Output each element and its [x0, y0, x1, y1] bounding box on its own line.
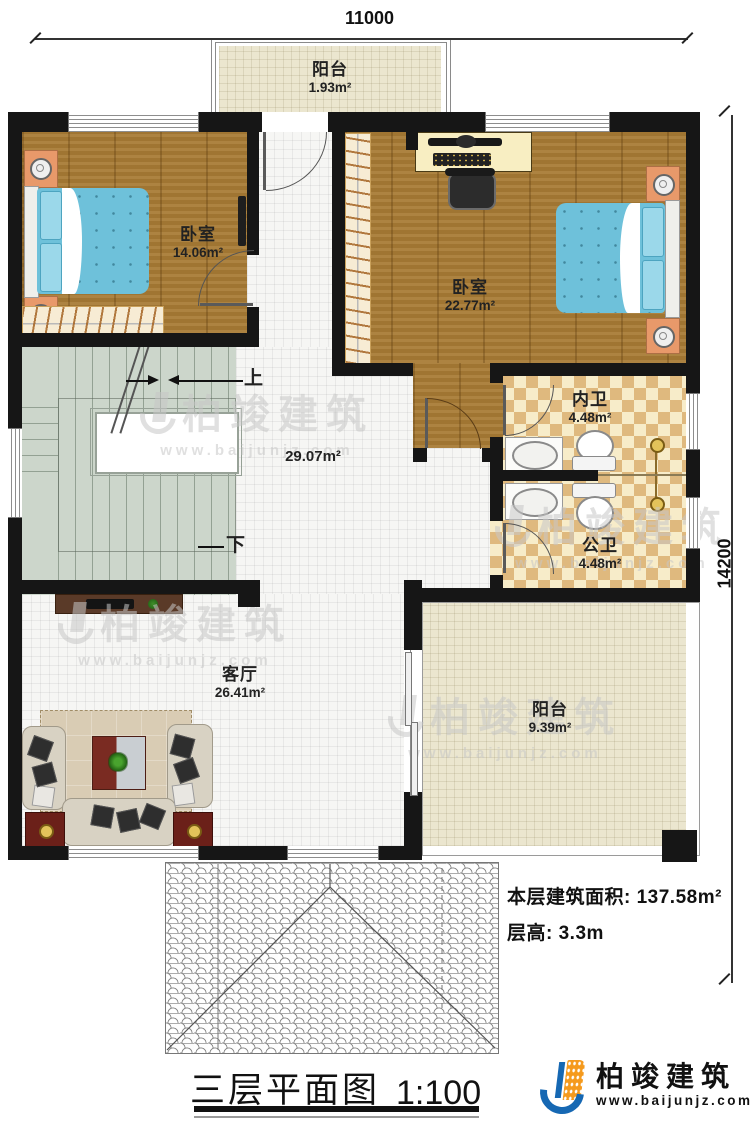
- wall-stair-south: [8, 580, 260, 594]
- company-name: 柏竣建筑: [596, 1062, 736, 1093]
- wall-alcove-south-left: [413, 448, 427, 462]
- sink: [512, 441, 558, 470]
- room-name: 公卫: [555, 536, 645, 556]
- room-area: 14.06m²: [148, 245, 248, 261]
- balcony-corner-pillar: [662, 830, 697, 862]
- room-name: 卧室: [148, 225, 248, 245]
- nightstand: [646, 166, 680, 202]
- window-stair-left: [8, 428, 22, 518]
- bed-sheet-fold: [620, 203, 640, 313]
- bed: [24, 186, 150, 296]
- lamp-icon: [653, 326, 675, 348]
- bedroom-right-label: 卧室 22.77m²: [420, 278, 520, 313]
- company-logo-icon: [540, 1058, 588, 1112]
- medallion-icon: [39, 824, 54, 839]
- throw-pillow: [90, 804, 114, 828]
- room-name: 阳台: [250, 60, 410, 80]
- bath-divider-thin-line: [598, 474, 686, 476]
- desk-keyboard: [433, 153, 491, 166]
- wall-pier: [406, 132, 418, 150]
- living-room-label: 客厅 26.41m²: [190, 665, 290, 700]
- wall-balcony-west-lower: [404, 792, 422, 846]
- wall-bedroom-right-south: [332, 363, 413, 376]
- sliding-door-panel: [411, 722, 418, 796]
- nightstand: [646, 318, 680, 354]
- stair-direction-line: [179, 380, 243, 382]
- room-area: 22.77m²: [420, 298, 520, 314]
- lamp-icon: [653, 174, 675, 196]
- wardrobe: [345, 133, 371, 364]
- wall-bath-west-b: [490, 437, 503, 521]
- corner-table: [25, 812, 65, 848]
- throw-pillow: [116, 808, 141, 833]
- bedroom-left-label: 卧室 14.06m²: [148, 225, 248, 260]
- room-name: 内卫: [545, 390, 635, 410]
- top-balcony-label: 阳台 1.93m²: [250, 60, 410, 95]
- bath-inner-label: 内卫 4.48m²: [545, 390, 635, 425]
- throw-pillow: [32, 785, 56, 809]
- title-underline-thin: [194, 1116, 479, 1118]
- stair-direction-line: [198, 546, 224, 548]
- stair-arrow-icon: [148, 375, 159, 385]
- dimension-tick: [718, 973, 730, 985]
- tv: [86, 599, 134, 609]
- plant-icon: [148, 599, 158, 609]
- wall-bath-divider: [503, 470, 598, 481]
- title-underline-thick: [194, 1106, 479, 1112]
- bottom-balcony-label: 阳台 9.39m²: [500, 700, 600, 735]
- bed: [556, 200, 678, 316]
- bed-pillow: [642, 207, 664, 257]
- chair-back: [445, 168, 495, 176]
- bed-pillow: [40, 243, 62, 292]
- office-chair: [448, 172, 496, 210]
- wall-corridor-east: [332, 132, 345, 363]
- stair-direction-line: [126, 380, 148, 382]
- stair-down-label: 下: [226, 535, 245, 557]
- coffee-table: [92, 736, 146, 790]
- floor-plan-canvas: 11000 14200 阳台 1.93m² 上 下: [0, 0, 750, 1132]
- window-living-south-right: [287, 846, 379, 860]
- window-living-south-left: [68, 846, 199, 860]
- room-area: 9.39m²: [500, 720, 600, 736]
- desk-tv-base: [456, 135, 476, 148]
- sink: [512, 488, 558, 517]
- balcony-door-opening: [262, 112, 328, 132]
- window-top-left: [68, 112, 199, 132]
- toilet-tank: [572, 456, 616, 471]
- bath-public-label: 公卫 4.48m²: [555, 536, 645, 571]
- wall-stair-south-pillar: [238, 580, 260, 607]
- wall-bedroom-left-east-lower: [247, 307, 259, 333]
- wall-bath-north: [503, 363, 700, 376]
- stair-arrow-icon: [168, 375, 179, 385]
- room-area: 4.48m²: [545, 410, 635, 426]
- bed-pillow: [40, 191, 62, 240]
- nightstand: [24, 150, 58, 188]
- stair-landing: [95, 412, 239, 474]
- window-bath-public: [686, 497, 700, 549]
- floor-notes: 本层建筑面积: 137.58m² 层高: 3.3m: [507, 880, 742, 952]
- wall-bedroom-left-east-upper: [247, 132, 259, 255]
- towel-radiator-knob: [650, 497, 665, 512]
- room-area: 29.07m²: [268, 448, 358, 465]
- dimension-tick: [718, 105, 730, 117]
- floor-area-note: 本层建筑面积: 137.58m²: [507, 880, 742, 916]
- room-name: 客厅: [190, 665, 290, 685]
- wall-balcony-west-upper: [404, 580, 422, 650]
- lamp-icon: [30, 158, 52, 180]
- company-logo: 柏竣建筑 www.baijunjz.com: [540, 1058, 750, 1112]
- room-area: 4.48m²: [555, 556, 645, 572]
- wall-bath-west-a: [490, 363, 503, 383]
- right-dimension-label: 14200: [715, 538, 736, 588]
- medallion-icon: [187, 824, 202, 839]
- window-bath-inner: [686, 393, 700, 450]
- company-website: www.baijunjz.com: [596, 1093, 750, 1108]
- stair-treads-side: [22, 404, 58, 472]
- throw-pillow: [172, 783, 196, 807]
- window-top-right: [485, 112, 610, 132]
- top-dimension-label: 11000: [345, 8, 394, 29]
- roof-ridge-lines: [165, 862, 497, 1052]
- wall-balcony-north: [404, 588, 690, 602]
- room-area: 1.93m²: [250, 80, 410, 96]
- stair-up-label: 上: [244, 368, 263, 390]
- floor-height-note: 层高: 3.3m: [507, 916, 742, 952]
- toilet: [576, 496, 614, 530]
- bed-headboard: [665, 200, 680, 318]
- bed-pillow: [642, 260, 664, 310]
- hallway-area-label: 29.07m²: [268, 448, 358, 465]
- desk: [415, 132, 532, 172]
- room-name: 阳台: [500, 700, 600, 720]
- plant-icon: [109, 753, 127, 771]
- wall-bedroom-left-south: [8, 333, 259, 347]
- tv-cabinet: [55, 594, 183, 614]
- top-dimension-line: [35, 38, 688, 40]
- room-area: 26.41m²: [190, 685, 290, 701]
- room-name: 卧室: [420, 278, 520, 298]
- sliding-door-panel: [405, 652, 412, 726]
- corner-table: [173, 812, 213, 848]
- towel-radiator-knob: [650, 438, 665, 453]
